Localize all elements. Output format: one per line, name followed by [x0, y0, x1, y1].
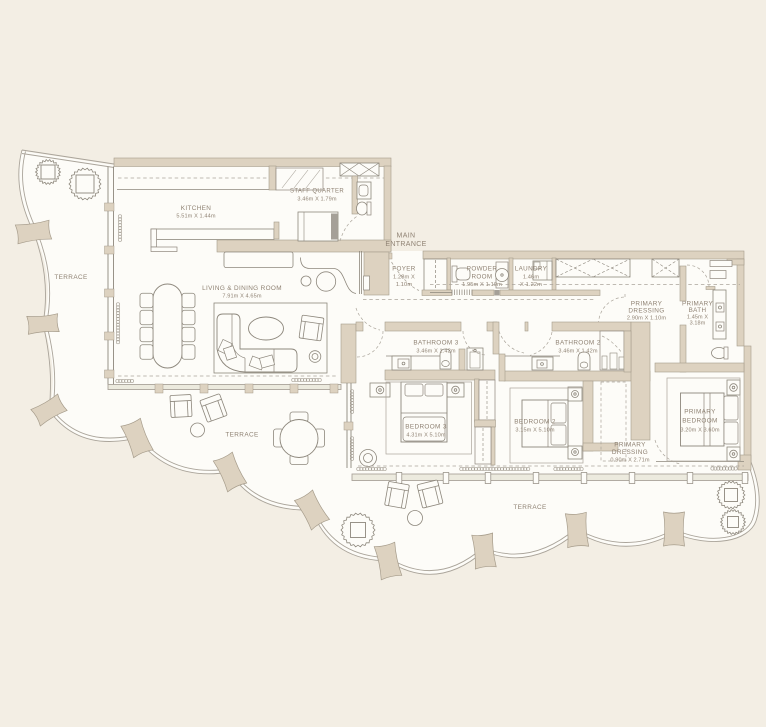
svg-text:DRESSING: DRESSING: [612, 449, 648, 456]
svg-text:TERRACE: TERRACE: [225, 432, 258, 439]
svg-text:3.46m X 1.79m: 3.46m X 1.79m: [297, 197, 336, 203]
svg-text:0.90m X 2.71m: 0.90m X 2.71m: [610, 457, 649, 463]
svg-text:LAUNDRY: LAUNDRY: [515, 266, 548, 273]
svg-text:1.46m: 1.46m: [523, 274, 539, 280]
svg-text:4.31m X 5.10m: 4.31m X 5.10m: [406, 433, 445, 439]
svg-text:2.90m X 1.10m: 2.90m X 1.10m: [627, 316, 666, 322]
svg-text:3.20m X 3.60m: 3.20m X 3.60m: [680, 428, 719, 434]
svg-text:1.28m X: 1.28m X: [393, 274, 415, 280]
svg-text:BATH: BATH: [689, 307, 707, 314]
svg-text:3.46m X 1.42m: 3.46m X 1.42m: [416, 349, 455, 355]
svg-text:1.10m: 1.10m: [396, 282, 412, 288]
svg-text:TERRACE: TERRACE: [513, 504, 546, 511]
svg-text:5.51m X 1.44m: 5.51m X 1.44m: [176, 214, 215, 220]
svg-text:1.95m X 1.10m: 1.95m X 1.10m: [462, 282, 502, 288]
svg-text:TERRACE: TERRACE: [54, 274, 87, 281]
svg-text:1.45m X: 1.45m X: [687, 314, 708, 320]
svg-text:3.46m X 1.42m: 3.46m X 1.42m: [558, 349, 597, 355]
svg-text:KITCHEN: KITCHEN: [181, 205, 212, 212]
svg-text:PRIMARY: PRIMARY: [614, 442, 646, 449]
svg-text:BEDROOM 3: BEDROOM 3: [405, 424, 447, 431]
svg-text:7.91m X 4.65m: 7.91m X 4.65m: [222, 294, 261, 300]
svg-text:FOYER: FOYER: [392, 266, 416, 273]
svg-text:X 1.22m: X 1.22m: [520, 282, 542, 288]
svg-text:BEDROOM 2: BEDROOM 2: [514, 419, 556, 426]
svg-text:ROOM: ROOM: [472, 273, 493, 280]
svg-text:BEDROOM: BEDROOM: [682, 418, 717, 425]
svg-text:LIVING & DINING ROOM: LIVING & DINING ROOM: [202, 285, 282, 292]
svg-text:3.15m X 5.10m: 3.15m X 5.10m: [515, 428, 554, 434]
svg-text:BATHROOM 3: BATHROOM 3: [413, 340, 458, 347]
svg-text:POWDER: POWDER: [467, 266, 498, 273]
svg-text:MAIN: MAIN: [397, 233, 416, 240]
svg-text:DRESSING: DRESSING: [628, 308, 664, 315]
svg-text:PRIMARY: PRIMARY: [631, 301, 663, 308]
svg-text:3.18m: 3.18m: [690, 321, 706, 327]
svg-text:PRIMARY: PRIMARY: [684, 409, 716, 416]
svg-text:BATHROOM 2: BATHROOM 2: [555, 340, 600, 347]
svg-text:STAFF QUARTER: STAFF QUARTER: [290, 189, 344, 195]
svg-text:ENTRANCE: ENTRANCE: [385, 241, 426, 248]
